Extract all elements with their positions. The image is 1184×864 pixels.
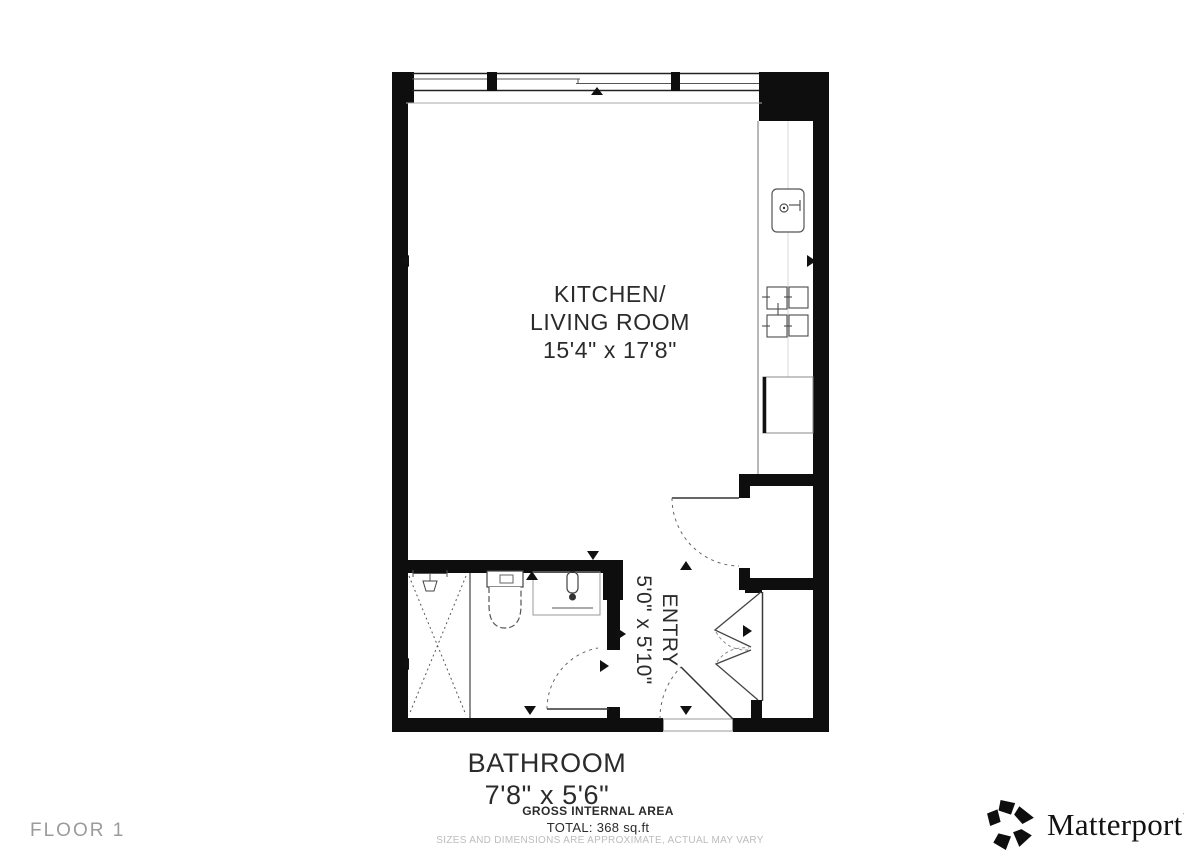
area-summary: GROSS INTERNAL AREA TOTAL: 368 sq.ft (448, 804, 748, 835)
entry-dimensions: 5'0" x 5'10" (630, 560, 656, 700)
closet-door-icon (672, 498, 739, 566)
room-label-entry: ENTRY 5'0" x 5'10" (628, 560, 682, 700)
bifold-closet-door-icon (715, 592, 761, 700)
total-area-value: TOTAL: 368 sq.ft (448, 820, 748, 835)
shower-icon (409, 570, 466, 715)
window-icon (406, 72, 762, 103)
floor-plan-page: KITCHEN/ LIVING ROOM 15'4" x 17'8" ENTRY… (0, 0, 1184, 864)
toilet-icon (487, 571, 523, 628)
arrow-down-bathroom-bottom (524, 706, 536, 715)
matterport-logo-icon (984, 799, 1038, 851)
room-label-bathroom: BATHROOM 7'8" x 5'6" (397, 748, 697, 812)
matterport-wordmark: Matterport™ (1047, 807, 1184, 843)
kitchen-living-name-line2: LIVING ROOM (440, 308, 780, 336)
floor-plan-drawing (0, 0, 1184, 864)
bathroom-door-icon (547, 648, 609, 709)
matterport-wordmark-text: Matterport (1047, 807, 1183, 842)
arrow-down-bathroom-wall (587, 551, 599, 560)
kitchen-living-name-line1: KITCHEN/ (440, 280, 780, 308)
disclaimer-text: SIZES AND DIMENSIONS ARE APPROXIMATE, AC… (420, 835, 780, 846)
floor-label: FLOOR 1 (30, 820, 230, 842)
arrow-down-entry-bottom (680, 706, 692, 715)
arrow-right-bathroom-door (600, 660, 609, 672)
gross-internal-area-title: GROSS INTERNAL AREA (448, 804, 748, 818)
kitchen-living-dimensions: 15'4" x 17'8" (440, 336, 780, 364)
arrow-right-bifold (743, 625, 752, 637)
bathroom-sink-icon (533, 572, 600, 615)
arrow-right-entry-side (617, 628, 626, 640)
entry-name: ENTRY (656, 560, 682, 700)
room-label-kitchen-living: KITCHEN/ LIVING ROOM 15'4" x 17'8" (440, 280, 780, 364)
refrigerator-icon (763, 377, 813, 433)
kitchen-sink-icon (772, 189, 804, 232)
bathroom-name: BATHROOM (397, 748, 697, 780)
matterport-logo: Matterport™ (984, 799, 1184, 851)
